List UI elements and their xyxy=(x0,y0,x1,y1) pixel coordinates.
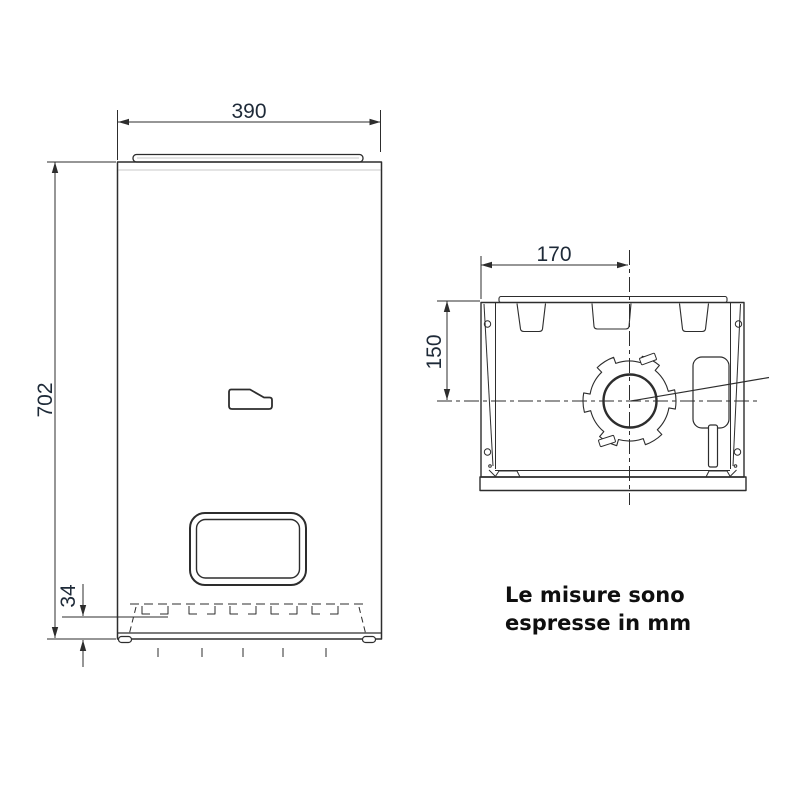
junction-box xyxy=(693,357,729,467)
units-note-line1: Le misure sono xyxy=(505,581,691,609)
top-front-panel-edge xyxy=(499,297,727,303)
mounting-foot-left xyxy=(119,637,132,643)
cable-gland xyxy=(709,425,718,467)
dimension-label-bottom-clearance: 34 xyxy=(57,584,80,608)
units-note-line2: espresse in mm xyxy=(505,609,691,637)
leader-line xyxy=(631,378,769,402)
top-recesses xyxy=(517,304,709,332)
top-bottom-rail xyxy=(480,470,746,491)
dimension-label-flue-offset-y: 150 xyxy=(423,334,446,369)
boiler-dimension-drawing: 390 702 34 xyxy=(0,0,800,800)
control-panel-window xyxy=(190,513,306,585)
front-casing-outline xyxy=(118,155,382,640)
connection-tick-marks xyxy=(158,648,326,657)
units-note: Le misure sono espresse in mm xyxy=(505,581,691,637)
top-view: 170 150 xyxy=(423,243,769,505)
dimension-label-front-width: 390 xyxy=(231,100,266,123)
dimension-front-height: 702 xyxy=(34,162,116,639)
dimension-bottom-clearance: 34 xyxy=(57,584,168,667)
technical-drawing-canvas: 390 702 34 xyxy=(0,0,800,800)
hidden-connections xyxy=(130,604,368,633)
front-view: 390 702 34 xyxy=(34,100,382,667)
dimension-flue-offset-y: 150 xyxy=(423,301,480,400)
dimension-label-flue-offset-x: 170 xyxy=(536,243,571,266)
front-bottom-edge xyxy=(118,633,382,657)
dimension-front-width: 390 xyxy=(118,100,381,160)
dimension-flue-offset-x: 170 xyxy=(481,243,628,299)
mounting-foot-right xyxy=(363,637,376,643)
display-window xyxy=(229,390,272,410)
screw-holes xyxy=(484,321,741,468)
dimension-label-front-height: 702 xyxy=(34,382,57,417)
collar-clip-top xyxy=(639,353,656,365)
